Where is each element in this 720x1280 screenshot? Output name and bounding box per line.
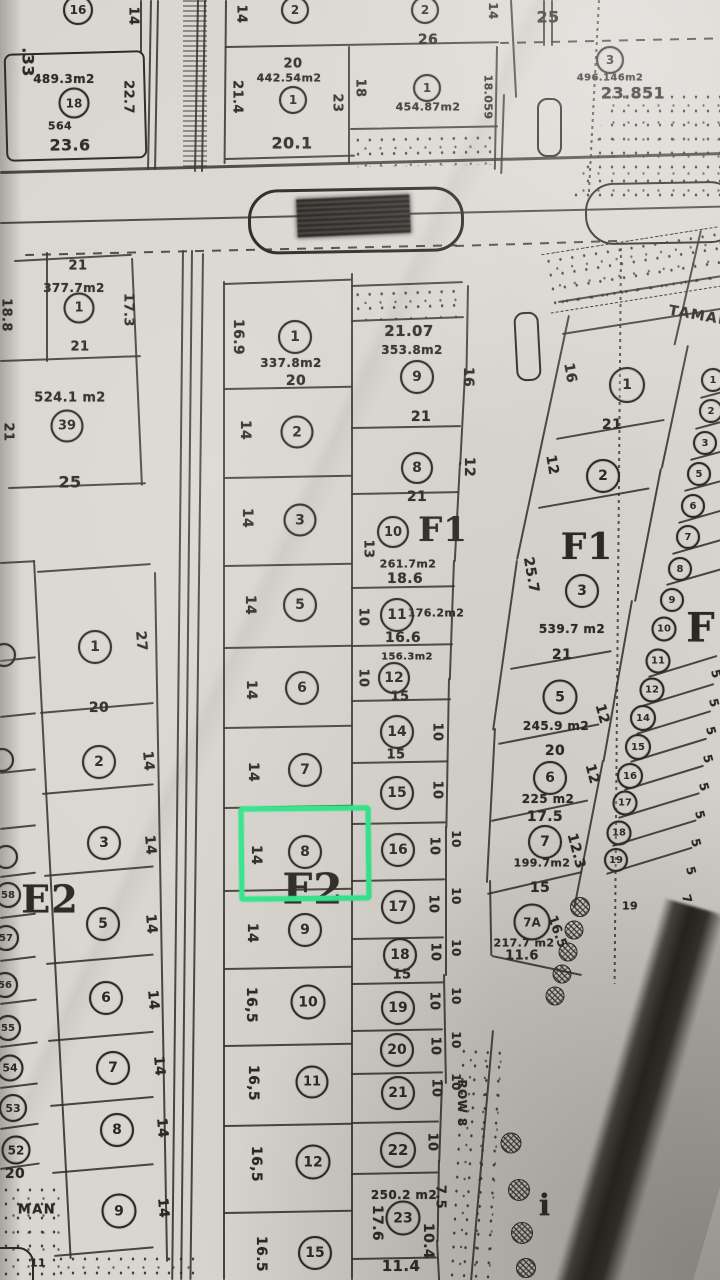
plot-number [0, 643, 16, 667]
plot-number: 52 [2, 1136, 31, 1165]
boundary-line [42, 783, 154, 795]
dimension-label: 10 [428, 943, 443, 962]
dimension-label: 18.6 [387, 571, 423, 587]
plot-number: 7 [528, 825, 562, 859]
dimension-label: 18.059 [482, 75, 495, 120]
plot-number: 17 [613, 791, 638, 816]
dimension-label: ROW 8 [455, 1079, 469, 1126]
boundary-line [351, 1071, 443, 1075]
tree-symbol-icon [553, 965, 572, 984]
dimension-label: 25 [58, 473, 81, 492]
boundary-line [500, 94, 505, 174]
plot-number: 20 [380, 1033, 414, 1067]
parcel-outline-box [513, 311, 542, 381]
dimension-label: 21 [69, 259, 88, 274]
plot-number: 10 [291, 985, 326, 1020]
dimension-label: 20 [89, 700, 109, 716]
area-label: 539.7 m2 [539, 622, 605, 636]
dimension-label: 11.4 [382, 1257, 421, 1275]
dimension-label: 10 [426, 895, 441, 914]
plot-number: 11 [380, 598, 414, 632]
plot-number: 1 [609, 367, 645, 403]
tree-symbol-icon [501, 1133, 522, 1154]
boundary-line [445, 826, 447, 976]
plot-number: 10 [377, 516, 409, 548]
plot-number: 12 [640, 678, 665, 703]
dimension-label: 16.6 [385, 630, 421, 646]
dimension-label: 17.6 [369, 1205, 385, 1241]
boundary-line [445, 678, 450, 828]
dimension-label: 10 [430, 781, 445, 800]
plot-number: 39 [51, 410, 84, 443]
plot-number: 3 [596, 46, 624, 74]
dimension-label: 7 [679, 893, 695, 905]
dimension-label: 14 [154, 1197, 172, 1219]
dimension-label: 10 [427, 837, 442, 856]
tree-symbol-icon [511, 1222, 533, 1244]
boundary-line [0, 355, 141, 362]
plot-number: 5 [543, 680, 578, 715]
boundary-line [350, 125, 498, 130]
dimension-label: 26 [418, 32, 438, 48]
dimension-label: 14 [245, 762, 261, 782]
boundary-line [449, 560, 456, 680]
boundary-line [465, 285, 469, 375]
dimension-label: 16,5 [245, 1065, 261, 1101]
area-label: 442.54m2 [257, 72, 322, 85]
boundary-line [351, 491, 459, 495]
boundary-line [500, 37, 720, 44]
plot-number: 9 [400, 360, 434, 394]
dimension-label: 14 [243, 680, 259, 700]
dimension-label: 10 [428, 1037, 443, 1056]
dimension-label: 20 [545, 743, 565, 759]
dimension-label: 21.07 [384, 322, 433, 340]
boundary-line [351, 1028, 443, 1032]
boundary-line [492, 560, 518, 731]
boundary-line [0, 956, 36, 962]
parcel-outline-box [0, 1247, 34, 1280]
boundary-line [486, 728, 496, 883]
boundary-line [44, 865, 154, 877]
tree-symbol-icon [546, 987, 565, 1006]
dimension-label: 10 [356, 608, 371, 627]
dimension-label: 14 [239, 508, 255, 528]
plot-number: 8 [668, 557, 692, 581]
dimension-label: 5 [696, 781, 712, 793]
plot-number: 57 [0, 925, 19, 951]
plot-number: 6 [89, 981, 123, 1015]
plot-number: 19 [381, 991, 415, 1025]
plot-number: 7A [514, 904, 551, 941]
plot-number: 7 [676, 525, 700, 549]
plot-number: 18 [59, 88, 90, 119]
boundary-line [224, 966, 352, 970]
street-name-label: MAN [18, 1203, 56, 1218]
plot-number: 6 [681, 494, 705, 518]
dimension-label: 16.9 [230, 319, 246, 355]
dimension-label: 10.4 [420, 1223, 436, 1259]
boundary-line [147, 0, 152, 170]
plot-number: 23 [386, 1201, 421, 1236]
plot-number: 2 [281, 0, 309, 24]
dimension-label: 18 [353, 79, 368, 98]
dimension-label: 21 [552, 647, 572, 663]
dimension-label: 16 [560, 362, 579, 385]
dimension-label: 22.7 [121, 80, 136, 114]
section-label: F1 [561, 526, 614, 568]
plot-number: 3 [284, 504, 317, 537]
area-label: 156.3m2 [381, 652, 433, 663]
dimension-label: 14 [237, 420, 253, 440]
plot-number: 2 [281, 416, 314, 449]
dimension-label: 16,5 [243, 987, 259, 1023]
area-label: 337.8m2 [260, 356, 322, 370]
plot-number: 7 [96, 1051, 130, 1085]
parcel-outline-box [584, 181, 720, 246]
dimension-label: 12 [592, 702, 613, 726]
dimension-label: 12 [461, 457, 477, 477]
boundary-line [224, 0, 228, 164]
boundary-line [0, 1041, 38, 1048]
dimension-label: 27 [132, 630, 150, 652]
area-label: 489.3m2 [33, 72, 95, 86]
plot-number: 2 [699, 399, 720, 423]
boundary-line [225, 155, 355, 161]
area-label: 245.9 m2 [523, 719, 589, 733]
section-label: E2 [21, 877, 78, 922]
dimension-label: 14 [153, 1117, 171, 1139]
dimension-label: 21 [1, 423, 16, 442]
plot-number: 1 [278, 320, 312, 354]
dimension-label: 11 [30, 1257, 46, 1270]
dimension-label: 14 [126, 7, 141, 26]
boundary-line [154, 0, 159, 170]
dimension-label: 5 [692, 809, 708, 821]
dimension-label: 14 [139, 750, 157, 772]
plot-number: 22 [380, 1132, 416, 1168]
boundary-line [48, 1031, 154, 1042]
plot-number: 12 [378, 662, 410, 694]
dimension-label: 19 [622, 900, 638, 913]
plot-number: 3 [87, 826, 121, 860]
boundary-line [224, 1123, 352, 1127]
plot-number: 2 [586, 459, 620, 493]
dimension-label: 14 [242, 595, 258, 615]
redacted-road-name-stamp [296, 195, 411, 238]
plot-number: 1 [413, 74, 441, 102]
boundary-line [131, 258, 143, 486]
dimension-label: 14 [244, 923, 260, 943]
plot-number: 8 [100, 1113, 134, 1147]
plot-number: 16 [381, 833, 415, 867]
street-name-label: TAMAN [667, 303, 720, 330]
dimension-label: 20 [5, 1166, 25, 1182]
boundary-line [0, 998, 37, 1004]
plot-number: 16 [617, 763, 643, 789]
dimension-label: 564 [48, 120, 72, 133]
dimension-label: 25.7 [520, 556, 542, 594]
tree-symbol-icon [565, 921, 584, 940]
dimension-label: 17.5 [527, 809, 563, 825]
plot-number: 5 [86, 907, 120, 941]
dimension-label: 10 [449, 987, 463, 1005]
plot-number [0, 748, 14, 772]
boundary-line [224, 475, 352, 479]
plot-number: 1 [64, 293, 95, 324]
boundary-line [0, 824, 36, 830]
dimension-label: 10 [449, 1031, 463, 1049]
plot-number: 58 [0, 882, 21, 908]
plot-number: 9 [288, 913, 322, 947]
dimension-label: 23 [330, 94, 345, 113]
section-label: F1 [418, 510, 468, 550]
plot-number: 3 [565, 574, 599, 608]
dimension-label: 20 [284, 57, 303, 72]
dimension-label: 10 [449, 887, 463, 905]
dimension-label: 21 [411, 409, 431, 425]
plot-number: 11 [646, 649, 671, 674]
dimension-label: 5 [700, 753, 716, 765]
plot-number: 14 [380, 715, 414, 749]
plot-number: 5 [687, 462, 711, 486]
dimension-label: 15 [530, 880, 550, 896]
dimension-label: 5 [683, 865, 699, 877]
boundary-line [510, 0, 517, 98]
dimension-label: 25 [536, 8, 559, 27]
boundary-line [224, 563, 352, 567]
dimension-label: 16.5 [253, 1236, 269, 1272]
dimension-label: 20 [286, 373, 306, 389]
plot-number: 10 [652, 617, 677, 642]
tree-symbol-icon [508, 1179, 530, 1201]
dimension-label: 10 [449, 830, 463, 848]
dimension-label: 5 [706, 697, 720, 709]
boundary-line [225, 41, 499, 48]
boundary-line [0, 712, 36, 718]
plot-number: 1 [701, 368, 720, 392]
stipple-region [351, 284, 462, 321]
boundary-line [46, 954, 154, 966]
area-label: 524.1 m2 [34, 391, 105, 406]
boundary-line [37, 563, 151, 573]
boundary-line [0, 1082, 38, 1089]
plot-number: 18 [383, 938, 417, 972]
plot-number: 5 [283, 588, 317, 622]
plot-number: 2 [411, 0, 439, 24]
tree-symbol-icon [570, 897, 590, 917]
plot-number: 16 [63, 0, 93, 25]
plot-number: 11 [296, 1066, 329, 1099]
plot-number: 12 [296, 1145, 331, 1180]
dimension-label: 14 [486, 2, 500, 20]
plot-number: 3 [693, 431, 717, 455]
dimension-label: 5 [688, 837, 704, 849]
boundary-line [0, 1123, 39, 1130]
plot-number: 55 [0, 1015, 21, 1041]
dimension-label: 10 [427, 992, 442, 1011]
stipple-region [55, 1252, 197, 1280]
dimension-label: 12 [582, 762, 603, 786]
boundary-line [50, 1096, 154, 1107]
dimension-label: 10 [449, 939, 463, 957]
dimension-label: 14 [142, 913, 160, 935]
boundary-line [351, 425, 461, 429]
dimension-label: 14 [144, 989, 162, 1011]
dimension-label: 12 [542, 454, 561, 477]
boundary-line [0, 560, 35, 564]
boundary-line [189, 253, 204, 1280]
boundary-line [224, 279, 352, 286]
dimension-label: 5 [703, 725, 719, 737]
dimension-label: 23.851 [601, 84, 665, 103]
dimension-label: 21 [602, 417, 622, 433]
plot-number: 1 [279, 86, 307, 114]
boundary-line [351, 1120, 439, 1124]
parcel-outline-box [537, 98, 562, 157]
plot-number: 8 [401, 452, 433, 484]
cadastral-map: .3314489.3m256423.622.721.4142620442.54m… [0, 0, 720, 1280]
plot-number: 56 [0, 972, 18, 998]
dimension-label: 14 [141, 834, 159, 856]
boundary-line [224, 1043, 352, 1047]
area-label: 454.87m2 [396, 101, 461, 114]
boundary-line [614, 248, 622, 984]
boundary-line [224, 645, 352, 649]
area-label: 496.146m2 [577, 73, 644, 84]
dimension-label: 16,5 [248, 1146, 264, 1182]
dimension-label: 21.4 [230, 80, 245, 114]
dimension-label: 11.6 [505, 949, 539, 964]
plot-number: 9 [660, 588, 684, 612]
highlight-selected-plot-8[interactable] [239, 805, 372, 901]
area-label: 353.8m2 [381, 343, 443, 357]
dimension-label: 21 [71, 340, 90, 355]
section-label: F [686, 605, 715, 652]
boundary-line [351, 273, 353, 1280]
dimension-label: 15 [387, 748, 406, 763]
dimension-label: 16 [460, 367, 476, 387]
boundary-line [223, 281, 225, 1280]
boundary-line [443, 974, 447, 1084]
dimension-label: 21 [407, 489, 427, 505]
plot-number: 15 [625, 734, 651, 760]
plot-number [0, 845, 18, 869]
boundary-line [224, 725, 352, 729]
plot-number: 7 [288, 753, 322, 787]
boundary-line [436, 1240, 441, 1280]
plot-number: 53 [0, 1094, 27, 1122]
plot-number: 6 [533, 761, 567, 795]
dimension-label: 14 [150, 1055, 168, 1077]
plot-number: 9 [102, 1194, 137, 1229]
plot-number: 17 [381, 890, 415, 924]
plot-number: 6 [285, 671, 319, 705]
boundary-line [52, 1163, 154, 1174]
boundary-line [46, 252, 48, 362]
dimension-label: 10 [429, 1079, 444, 1098]
dimension-label: 14 [234, 5, 249, 24]
boundary-line [661, 345, 690, 469]
dimension-label: 10 [356, 669, 371, 688]
dimension-label: 5 [708, 668, 720, 680]
boundary-line [351, 1171, 438, 1175]
plot-number: 18 [607, 821, 632, 846]
dimension-label: 20.1 [271, 134, 312, 153]
plot-number: 21 [381, 1076, 415, 1110]
dimension-label: 13 [361, 540, 376, 559]
plot-number: 15 [298, 1236, 332, 1270]
dimension-label: 18.8 [0, 298, 14, 332]
plot-number: 54 [0, 1055, 24, 1082]
dimension-label: 23.6 [49, 136, 90, 155]
plot-number: 2 [82, 745, 116, 779]
dimension-label: 7.5 [433, 1185, 448, 1209]
plot-number: 1 [78, 630, 112, 664]
area-label: 261.7m2 [380, 558, 437, 571]
section-label: i [539, 1189, 551, 1224]
boundary-line [224, 1210, 352, 1214]
plot-number: 15 [380, 776, 414, 810]
plot-number: 14 [630, 705, 656, 731]
dimension-label: 10 [430, 723, 445, 742]
plot-number: 19 [604, 848, 628, 872]
dimension-label: 10 [425, 1133, 440, 1152]
area-label: 176.2m2 [408, 607, 465, 620]
dimension-label: 17.3 [121, 293, 136, 327]
tree-symbol-icon [516, 1258, 536, 1278]
boundary-line [348, 46, 350, 164]
